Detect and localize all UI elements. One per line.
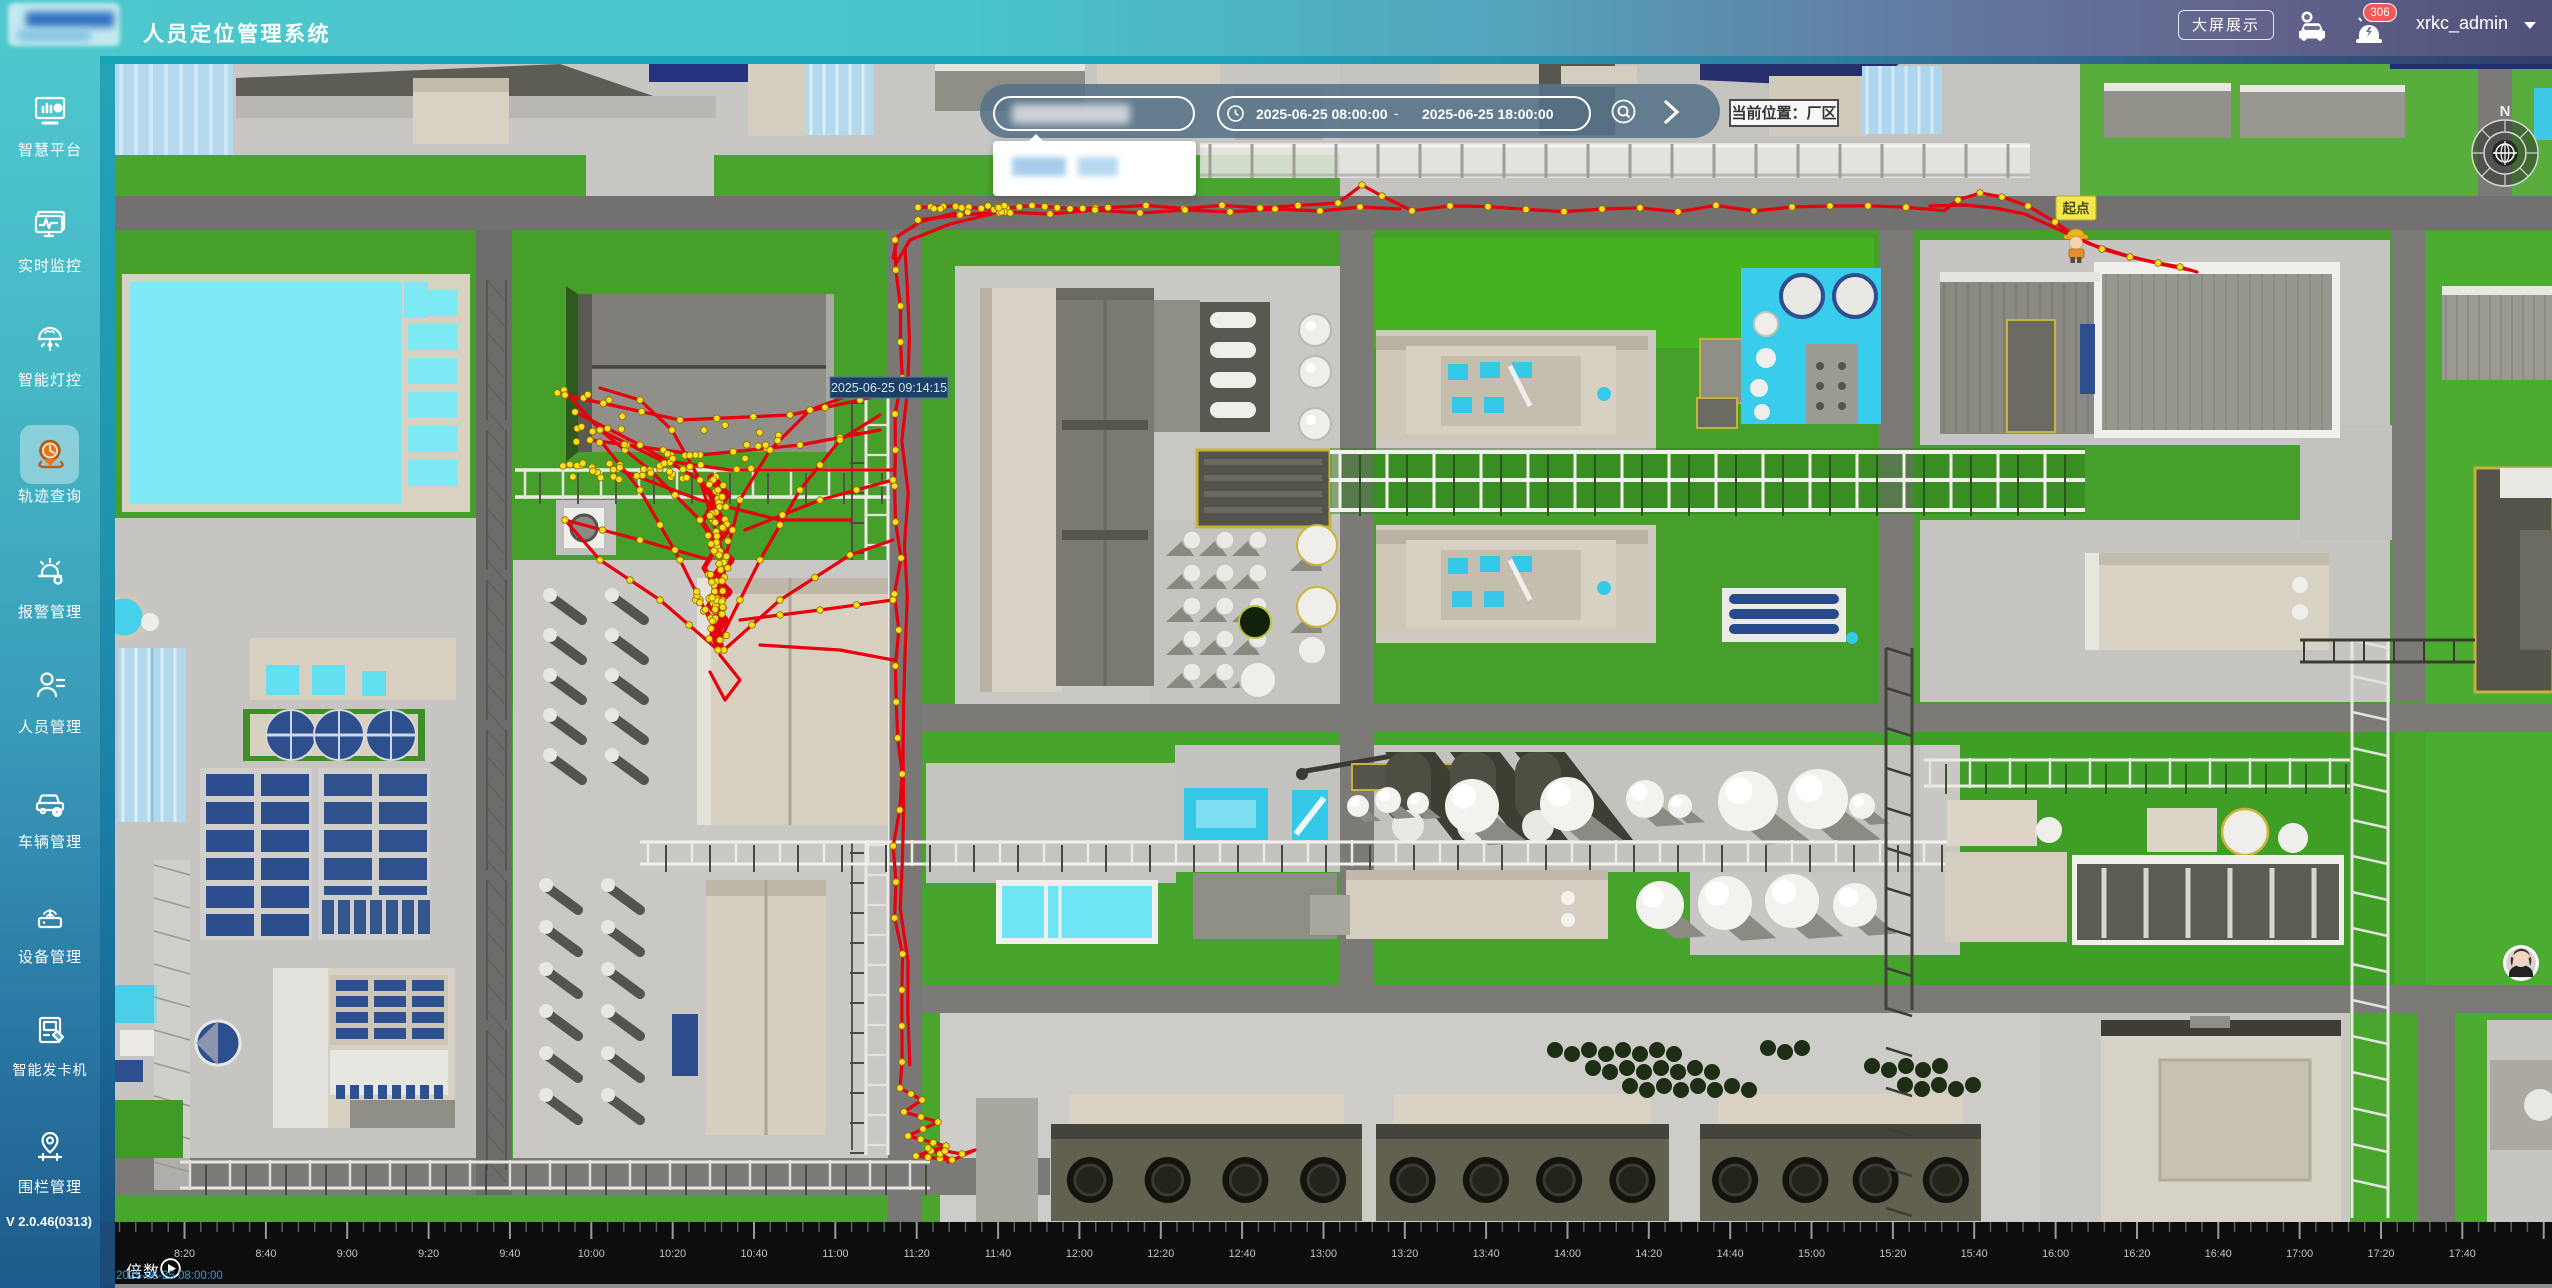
- svg-text:15:00: 15:00: [1798, 1248, 1825, 1260]
- svg-text:11:40: 11:40: [985, 1248, 1011, 1260]
- svg-text:9:20: 9:20: [418, 1248, 439, 1260]
- svg-text:13:40: 13:40: [1473, 1248, 1500, 1260]
- svg-text:16:00: 16:00: [2042, 1248, 2069, 1260]
- svg-text:12:20: 12:20: [1147, 1248, 1174, 1260]
- svg-text:N: N: [2500, 103, 2511, 120]
- svg-text:14:40: 14:40: [1717, 1248, 1744, 1260]
- svg-text:9:00: 9:00: [337, 1248, 358, 1260]
- svg-text:8:40: 8:40: [255, 1248, 276, 1260]
- svg-text:13:20: 13:20: [1391, 1248, 1418, 1260]
- svg-text:16:40: 16:40: [2205, 1248, 2232, 1260]
- svg-text:11:20: 11:20: [904, 1248, 930, 1260]
- svg-text:10:00: 10:00: [578, 1248, 605, 1260]
- svg-text:17:00: 17:00: [2286, 1248, 2313, 1260]
- svg-text:17:20: 17:20: [2367, 1248, 2394, 1260]
- svg-text:14:00: 14:00: [1554, 1248, 1581, 1260]
- svg-text:17:40: 17:40: [2449, 1248, 2476, 1260]
- svg-text:2025-06-25 09:14:15: 2025-06-25 09:14:15: [831, 381, 947, 395]
- svg-text:10:40: 10:40: [740, 1248, 767, 1260]
- svg-text:9:40: 9:40: [499, 1248, 520, 1260]
- svg-text:10:20: 10:20: [659, 1248, 686, 1260]
- svg-text:起点: 起点: [2062, 200, 2091, 216]
- svg-text:12:40: 12:40: [1229, 1248, 1256, 1260]
- svg-text:16:20: 16:20: [2123, 1248, 2150, 1260]
- svg-text:12:00: 12:00: [1066, 1248, 1093, 1260]
- svg-text:15:20: 15:20: [1879, 1248, 1906, 1260]
- svg-text:13:00: 13:00: [1310, 1248, 1337, 1260]
- svg-text:14:20: 14:20: [1635, 1248, 1662, 1260]
- svg-text:11:00: 11:00: [822, 1248, 848, 1260]
- svg-text:15:40: 15:40: [1961, 1248, 1988, 1260]
